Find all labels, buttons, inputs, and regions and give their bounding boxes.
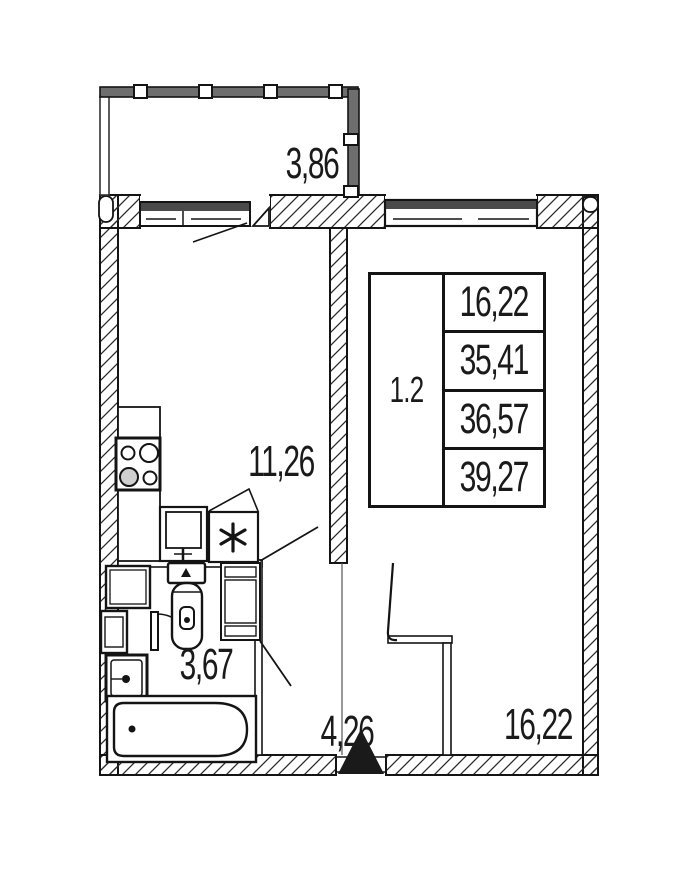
toilet-icon [168,563,205,649]
room-area-label: 16,22 [504,703,572,747]
floor-plan: 3,86 11,26 3,67 4,26 16,22 1.2 16,22 35,… [0,0,700,875]
cabinet-icon [221,563,260,640]
balcony-area-label: 3,86 [286,142,339,186]
stove-icon [116,438,160,490]
table-row: 36,57 [445,392,543,450]
area-values-column: 16,22 35,41 36,57 39,27 [445,275,543,505]
area-value: 36,57 [460,398,528,441]
washing-machine-icon [106,566,150,608]
apartment-info-table: 1.2 16,22 35,41 36,57 39,27 [368,272,546,508]
room-window-unit [385,196,537,227]
area-value: 16,22 [460,281,528,324]
vent-asterisk-icon [209,489,258,562]
bathtub-icon [107,696,256,762]
room-door-leaf [388,563,397,640]
unit-number-cell: 1.2 [371,275,445,505]
hallway-area-label: 4,26 [321,710,374,754]
bathroom-area-label: 3,67 [180,643,233,687]
kitchen-sink-icon [160,507,207,561]
unit-number: 1.2 [390,372,424,408]
table-row: 16,22 [445,275,543,333]
table-row: 35,41 [445,333,543,391]
area-value: 35,41 [460,339,528,382]
riser-box-icon [101,611,127,653]
kitchen-opening-marks [260,527,318,686]
basin-icon [106,655,147,701]
kitchen-area-label: 11,26 [248,440,314,484]
table-row: 39,27 [445,450,543,505]
kitchen-fixtures [116,407,258,562]
kitchen-window-unit [140,196,270,242]
area-value: 39,27 [460,456,528,499]
